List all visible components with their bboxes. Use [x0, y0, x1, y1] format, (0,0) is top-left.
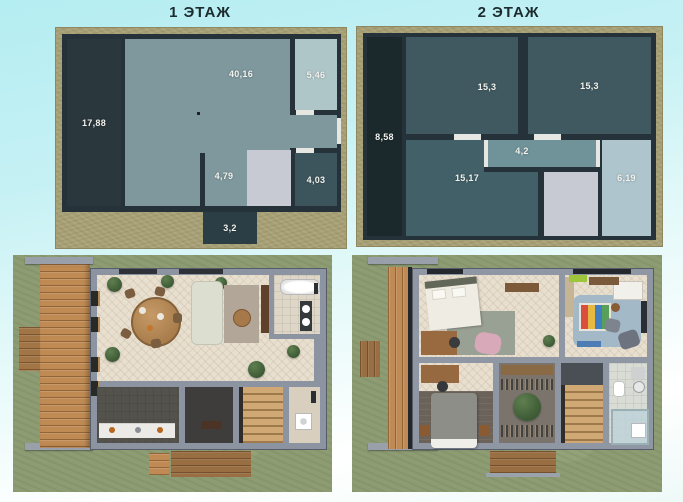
door-jamb: [484, 140, 488, 167]
shelf: [505, 283, 539, 292]
floor2-room-bedroom-bottom-ext: [484, 172, 538, 236]
roof-eave: [25, 257, 93, 264]
toy-bench: [577, 341, 601, 347]
sink: [302, 305, 310, 313]
garden-mat: [360, 341, 380, 377]
mirror: [314, 283, 318, 294]
plant: [107, 277, 122, 292]
plant: [287, 345, 300, 358]
plate: [157, 313, 164, 320]
floor2-house: [412, 268, 654, 450]
window: [573, 269, 631, 274]
floor2-room-bedroom-right: 15,3: [528, 37, 651, 134]
window: [179, 269, 223, 274]
shelf-unit: [565, 277, 574, 317]
floor2-room-bathroom: [602, 140, 651, 236]
window: [91, 317, 100, 332]
washing-machine: [295, 413, 312, 430]
room-area-label: 40,16: [206, 66, 276, 82]
window: [91, 291, 100, 306]
bedroom-second: [419, 363, 493, 443]
clothes-rack: [501, 425, 553, 437]
pillow: [451, 287, 466, 298]
floor2-title: 2 ЭТАЖ: [356, 4, 661, 21]
entry-hall: [185, 387, 233, 443]
window: [91, 357, 100, 372]
chair: [437, 381, 448, 392]
toilet: [613, 381, 625, 397]
kitchen: [97, 387, 179, 443]
floor2-schematic-plan: 8,58 15,3 15,3 4,2 15,17 6,19: [356, 26, 663, 247]
mirror: [311, 391, 316, 403]
wardrobe-room: [499, 363, 555, 443]
kids-room: [565, 275, 647, 357]
porch-step: [149, 453, 169, 475]
floor1-schematic-plan: 3,2 17,88 40,16 5,46 4,03 4,79: [55, 27, 347, 249]
staircase: [239, 387, 283, 443]
chair: [173, 313, 182, 323]
floor2-room-balcony: 8,58: [367, 37, 402, 236]
utility-room: [289, 387, 320, 443]
entrance-porch: [490, 451, 556, 473]
coffee-table: [233, 309, 251, 327]
washing-machine: [631, 423, 646, 438]
plant-large: [513, 393, 541, 421]
porch-step: [486, 473, 560, 477]
pouf: [604, 318, 621, 334]
bathroom-upper: [609, 363, 647, 443]
nightstand: [419, 425, 430, 436]
room-area-label: 4,2: [492, 143, 552, 159]
sink: [302, 318, 310, 326]
floor1-house: [90, 268, 327, 450]
window: [427, 269, 463, 274]
room-area-label: 8,58: [375, 129, 394, 145]
bedroom-master: [419, 275, 559, 357]
counter-item: [157, 427, 163, 433]
floor1-room-porch: 3,2: [203, 212, 257, 244]
garden-mat: [19, 327, 40, 371]
double-bed: [425, 276, 482, 330]
room-area-label: 4,79: [202, 168, 246, 184]
floor2-room-bedroom-bottom: [406, 140, 484, 236]
floor1-room-bathroom: 5,46: [295, 39, 337, 110]
window: [119, 269, 157, 274]
floor1-room-terrace: 17,88: [67, 39, 121, 206]
terrace-deck: [40, 264, 90, 448]
stairwell-void: [561, 363, 603, 385]
entrance-porch: [171, 451, 251, 477]
plate: [147, 325, 153, 331]
plant: [248, 361, 265, 378]
round-mirror: [633, 381, 645, 393]
room-area-label: 17,88: [82, 115, 106, 131]
floor1-title: 1 ЭТАЖ: [55, 4, 345, 21]
floor1-stairs-block: [247, 150, 291, 206]
page: 1 ЭТАЖ 2 ЭТАЖ 3,2 17,88 40,16 5,46 4,03: [0, 0, 683, 502]
wardrobe-dark: [641, 301, 647, 333]
plant: [161, 275, 174, 288]
roof-eave: [368, 257, 438, 264]
pillow: [431, 289, 446, 300]
plant: [105, 347, 120, 362]
room-area-label: 15,3: [467, 79, 507, 95]
room-area-label: 5,46: [307, 67, 326, 83]
bed: [431, 393, 477, 448]
floor1-3d-render: [13, 255, 332, 492]
floor2-3d-render: [352, 255, 662, 492]
bench: [201, 421, 221, 429]
floor1-corridor: [295, 115, 337, 148]
plant: [543, 335, 555, 347]
balcony-deck: [388, 267, 412, 449]
window-sill: [337, 118, 341, 144]
counter-item: [135, 427, 141, 433]
sofa: [191, 281, 223, 345]
desk-chair: [449, 337, 460, 348]
toy-box: [569, 275, 587, 282]
room-area-label: 6,19: [602, 170, 651, 186]
plate: [139, 307, 146, 314]
cabinet: [501, 365, 553, 375]
bathroom: [269, 275, 320, 339]
shelf: [589, 277, 619, 285]
column-dot: [197, 112, 200, 115]
room-area-label: 15,3: [580, 78, 599, 94]
floor2-stairs-block: [544, 172, 598, 236]
counter-item: [109, 427, 115, 433]
nightstand: [479, 425, 490, 436]
teddy-bear: [611, 303, 620, 312]
door-jamb: [596, 140, 600, 167]
room-area-label: 4,03: [307, 172, 326, 188]
room-area-label: 3,2: [223, 220, 236, 236]
room-area-label: 15,17: [442, 170, 492, 186]
floor1-room-utility: 4,03: [295, 153, 337, 206]
clothes-rack: [501, 379, 553, 390]
vanity: [631, 367, 645, 379]
staircase: [561, 385, 603, 443]
